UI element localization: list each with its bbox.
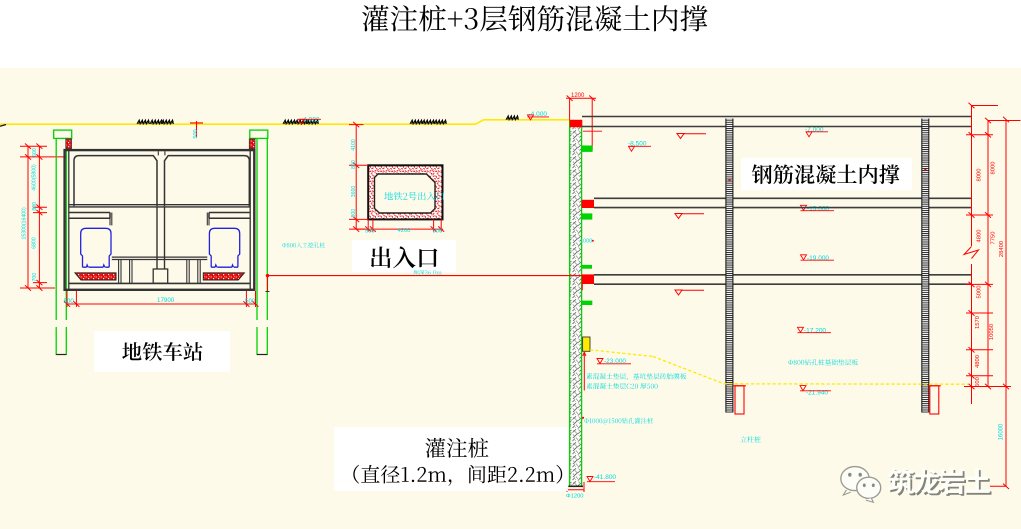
svg-text:3600: 3600 [351, 186, 357, 198]
svg-text:8000: 8000 [991, 162, 997, 175]
svg-text:500: 500 [365, 229, 375, 235]
svg-text:-41.800: -41.800 [594, 474, 616, 481]
svg-text:17900: 17900 [157, 297, 175, 304]
svg-text:1000: 1000 [580, 239, 592, 245]
svg-text:-19.000: -19.000 [807, 255, 829, 262]
svg-text:4100: 4100 [351, 139, 357, 151]
svg-text:1570: 1570 [975, 316, 981, 329]
svg-text:5000: 5000 [977, 286, 983, 299]
svg-text:500: 500 [975, 377, 981, 387]
svg-text:16000: 16000 [999, 423, 1005, 440]
svg-text:500: 500 [245, 298, 256, 305]
svg-text:15300(16400): 15300(16400) [22, 207, 28, 240]
svg-text:800: 800 [351, 160, 357, 169]
svg-text:6800: 6800 [32, 237, 38, 249]
svg-text:4800: 4800 [975, 355, 981, 368]
svg-text:500: 500 [433, 229, 443, 235]
svg-text:Φ1200: Φ1200 [566, 494, 584, 500]
svg-text:800: 800 [32, 202, 38, 211]
svg-text:4800: 4800 [977, 230, 983, 243]
svg-text:700: 700 [32, 273, 38, 282]
svg-text:8000: 8000 [977, 169, 983, 182]
svg-text:500: 500 [64, 298, 75, 305]
svg-text:10050: 10050 [989, 324, 995, 340]
svg-text:1200: 1200 [571, 93, 585, 99]
svg-text:4200: 4200 [398, 228, 411, 234]
svg-text:7750: 7750 [991, 232, 997, 245]
svg-text:600: 600 [32, 148, 38, 157]
svg-text:-15.000: -15.000 [807, 205, 829, 212]
svg-text:-17.200: -17.200 [804, 327, 826, 334]
svg-text:500: 500 [193, 129, 199, 138]
svg-text:4600(5800): 4600(5800) [32, 164, 38, 191]
svg-text:28400: 28400 [999, 241, 1005, 257]
svg-text:800: 800 [351, 209, 357, 218]
